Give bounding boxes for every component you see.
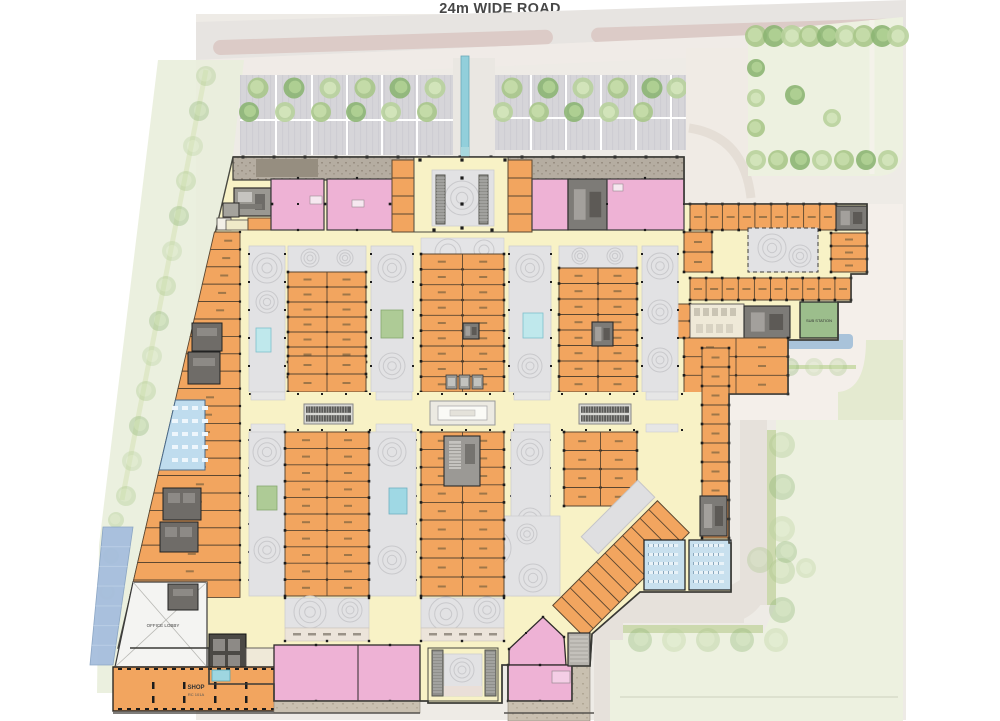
svg-text:RC 101A: RC 101A [188,692,205,697]
svg-text:OFFICE LOBBY: OFFICE LOBBY [147,623,180,628]
svg-text:SHOP: SHOP [187,685,204,691]
svg-text:SUB STATION: SUB STATION [806,318,832,323]
